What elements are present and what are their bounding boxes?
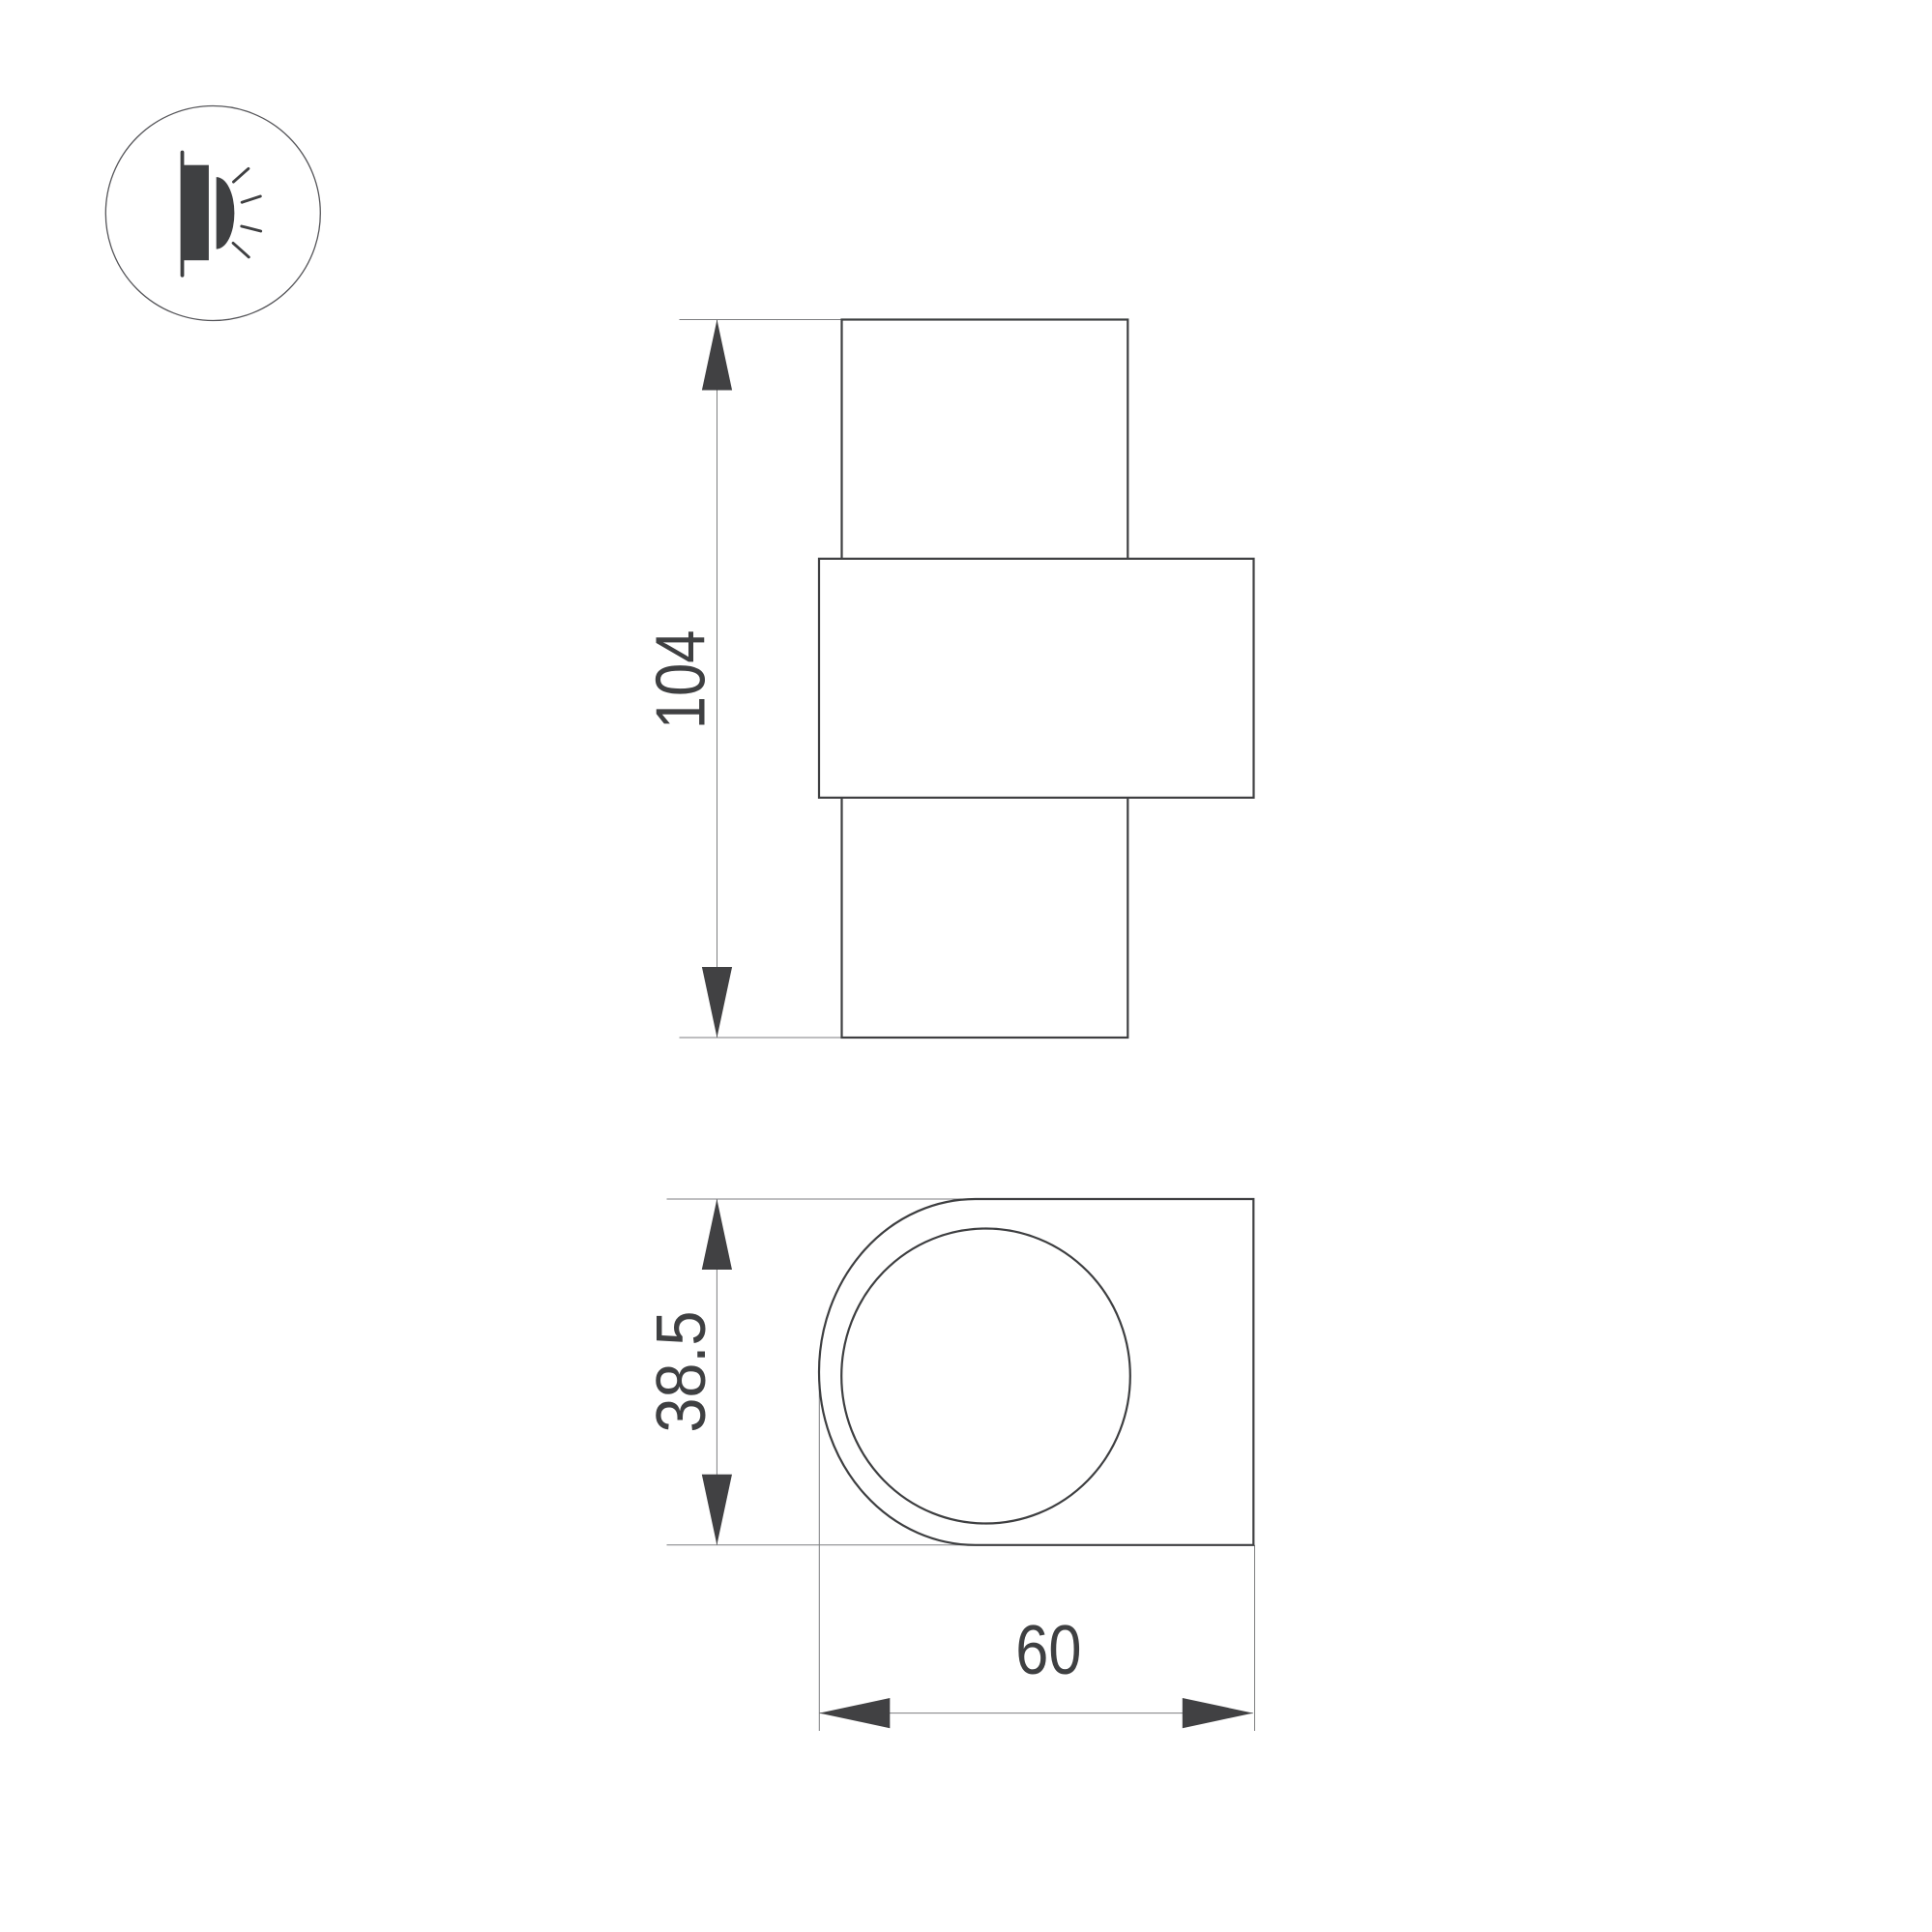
svg-text:104: 104 [642, 629, 720, 729]
svg-text:60: 60 [1015, 1611, 1081, 1689]
svg-text:38.5: 38.5 [642, 1311, 720, 1433]
